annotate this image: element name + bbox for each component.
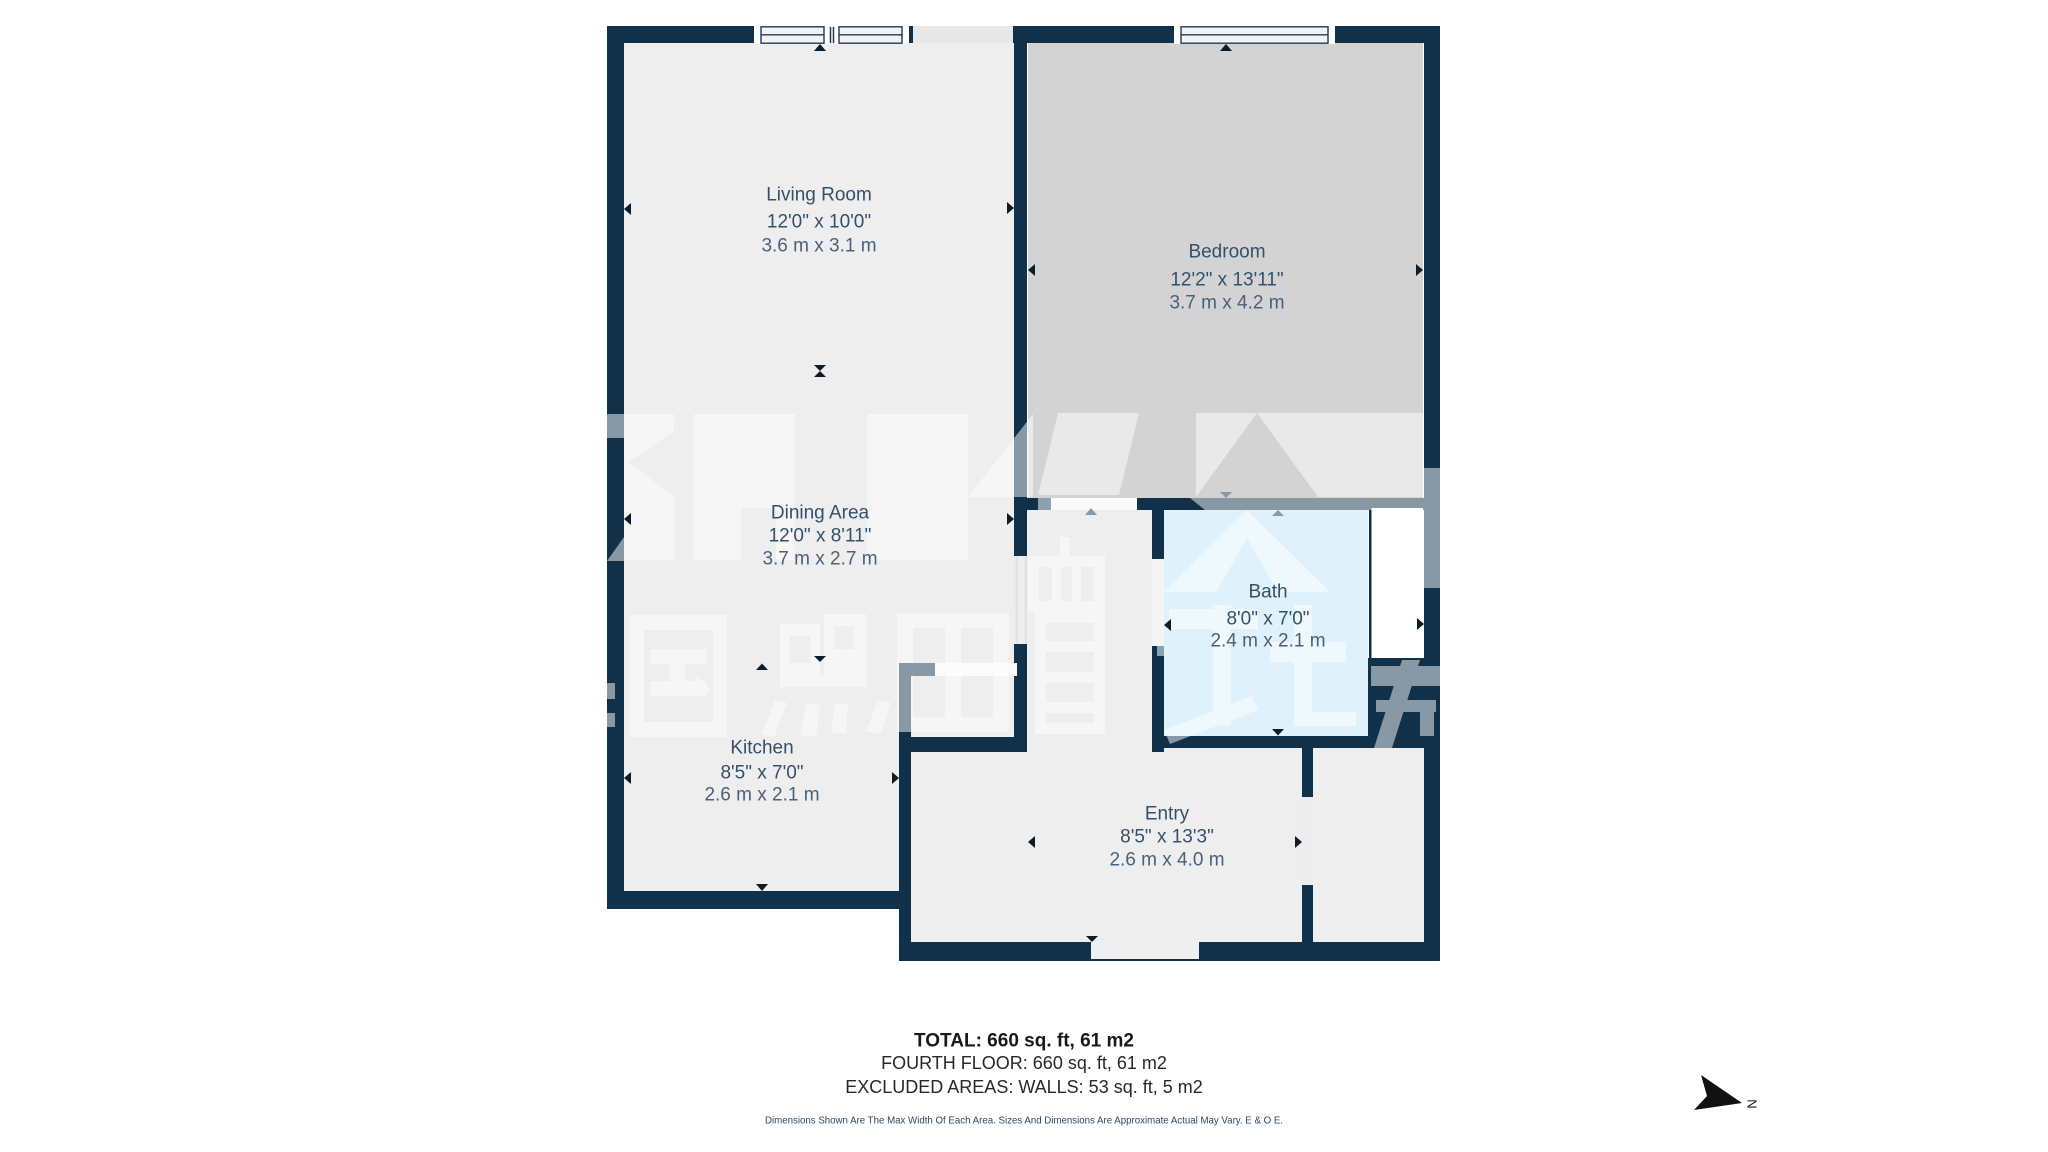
svg-text:Kitchen: Kitchen	[730, 738, 793, 759]
svg-text:12'0" x 8'11": 12'0" x 8'11"	[769, 526, 872, 547]
svg-text:N: N	[1745, 1099, 1760, 1108]
svg-text:Dimensions Shown Are The Max W: Dimensions Shown Are The Max Width Of Ea…	[765, 1116, 1283, 1127]
svg-text:Dining Area: Dining Area	[771, 503, 870, 524]
svg-text:Entry: Entry	[1145, 804, 1190, 825]
svg-text:FOURTH FLOOR: 660 sq. ft, 61 m: FOURTH FLOOR: 660 sq. ft, 61 m2	[881, 1053, 1167, 1073]
svg-text:Living Room: Living Room	[766, 185, 872, 206]
svg-text:12'0" x 10'0": 12'0" x 10'0"	[767, 212, 871, 233]
svg-text:8'0" x 7'0": 8'0" x 7'0"	[1226, 609, 1309, 630]
svg-text:12'2" x 13'11": 12'2" x 13'11"	[1170, 270, 1283, 291]
svg-text:8'5" x 13'3": 8'5" x 13'3"	[1120, 827, 1214, 848]
svg-text:EXCLUDED AREAS: WALLS: 53 sq.: EXCLUDED AREAS: WALLS: 53 sq. ft, 5 m2	[845, 1077, 1202, 1097]
svg-text:2.6 m x 2.1 m: 2.6 m x 2.1 m	[704, 785, 819, 806]
svg-text:2.4 m x 2.1 m: 2.4 m x 2.1 m	[1210, 631, 1325, 652]
svg-text:2.6 m x 4.0 m: 2.6 m x 4.0 m	[1109, 850, 1224, 871]
svg-text:8'5" x 7'0": 8'5" x 7'0"	[720, 763, 803, 784]
svg-text:Bedroom: Bedroom	[1188, 242, 1265, 263]
svg-text:TOTAL: 660 sq. ft, 61 m2: TOTAL: 660 sq. ft, 61 m2	[914, 1031, 1134, 1052]
svg-text:3.7 m x 2.7 m: 3.7 m x 2.7 m	[762, 549, 877, 570]
svg-text:3.7 m x 4.2 m: 3.7 m x 4.2 m	[1169, 293, 1284, 314]
svg-text:3.6 m x 3.1 m: 3.6 m x 3.1 m	[761, 236, 876, 257]
svg-text:Bath: Bath	[1248, 582, 1287, 603]
